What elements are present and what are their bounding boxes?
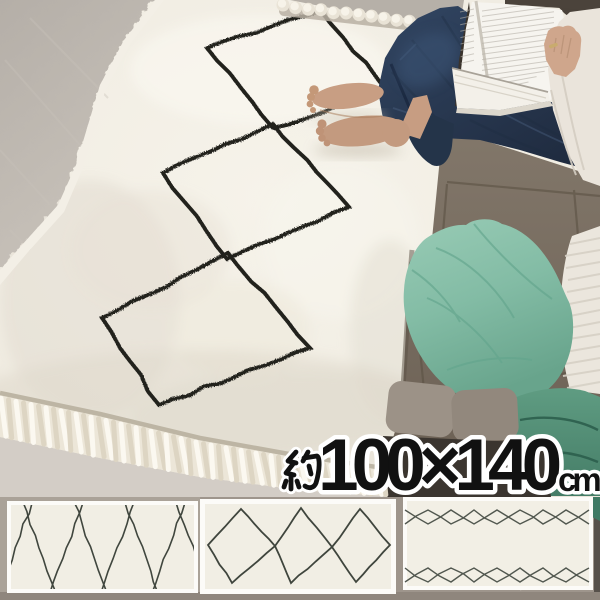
svg-text:100×140: 100×140 xyxy=(318,425,560,506)
svg-text:cm: cm xyxy=(558,461,600,498)
